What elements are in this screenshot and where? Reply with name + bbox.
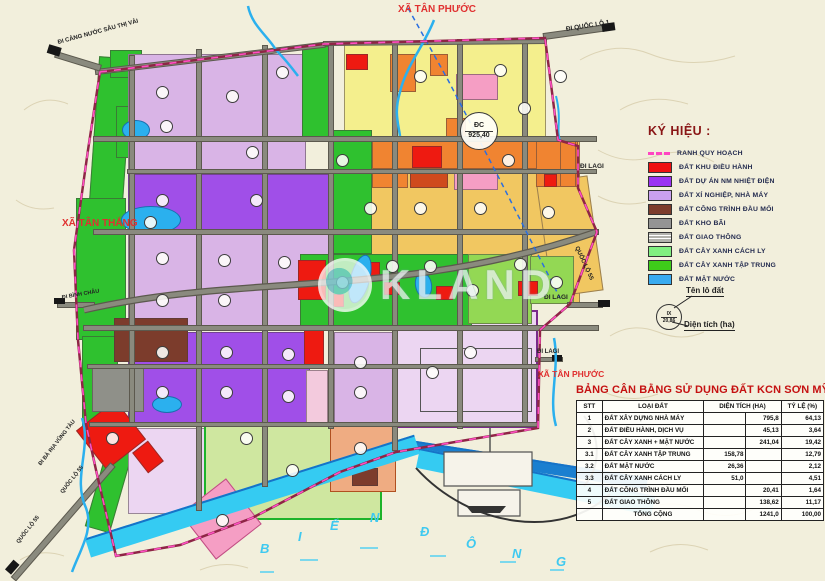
lot-circle (336, 276, 349, 289)
table-cell (704, 425, 746, 437)
table-cell: 241,04 (746, 437, 781, 449)
table-cell (746, 473, 781, 485)
table-cell: 11,17 (781, 497, 823, 509)
legend-dash-swatch (648, 149, 670, 158)
table-cell: 1,64 (781, 485, 823, 497)
sea-name-letter: N (370, 510, 379, 525)
table-cell (746, 449, 781, 461)
map-label: ĐI LAGI (580, 163, 604, 170)
table-header-cell: LOẠI ĐẤT (602, 401, 704, 413)
lot-circle (386, 260, 399, 273)
table-cell: ĐẤT CÂY XANH + MẶT NƯỚC (602, 437, 704, 449)
lot-circle (220, 346, 233, 359)
lot-circle (216, 514, 229, 527)
table-header-cell: STT (577, 401, 603, 413)
table-cell: ĐẤT CÂY XANH TẬP TRUNG (602, 449, 704, 461)
lot-circle (354, 356, 367, 369)
lot-circle (226, 90, 239, 103)
table-cell (704, 413, 746, 425)
legend-item-0: RANH QUY HOẠCH (648, 146, 824, 160)
legend-item-6: ĐẤT GIAO THÔNG (648, 230, 824, 244)
legend-items: RANH QUY HOẠCHĐẤT KHU ĐIỀU HÀNHĐẤT DỰ ÁN… (648, 146, 824, 286)
lot-circle (464, 346, 477, 359)
land-use-table-panel: BẢNG CÂN BẰNG SỬ DỤNG ĐẤT KCN SƠN MỸ 2 S… (576, 384, 824, 521)
table-cell: 3 (577, 437, 603, 449)
land-use-table-title: BẢNG CÂN BẰNG SỬ DỤNG ĐẤT KCN SƠN MỸ 2 (576, 384, 824, 396)
land-use-table-header: STTLOẠI ĐẤTDIỆN TÍCH (HA)TỶ LỆ (%) (577, 401, 824, 413)
table-cell: 4,51 (781, 473, 823, 485)
table-cell: 3.2 (577, 461, 603, 473)
lot-circle (278, 256, 291, 269)
lot-circle (364, 202, 377, 215)
legend-item-label: ĐẤT DỰ ÁN NM NHIỆT ĐIỆN (679, 178, 775, 185)
lot-circle (414, 70, 427, 83)
lot-circle (502, 154, 515, 167)
sea-name-letter: Ô (466, 536, 476, 551)
map-path (466, 506, 506, 513)
legend-item-4: ĐẤT CÔNG TRÌNH ĐẦU MỐI (648, 202, 824, 216)
legend-title: KÝ HIỆU : (648, 124, 824, 138)
table-cell: 5 (577, 497, 603, 509)
table-cell: ĐẤT GIAO THÔNG (602, 497, 704, 509)
lot-circle (426, 366, 439, 379)
legend-item-label: ĐẤT KHU ĐIỀU HÀNH (679, 164, 753, 171)
table-cell (704, 485, 746, 497)
table-cell (746, 461, 781, 473)
lot-circle (414, 202, 427, 215)
legend-item-5: ĐẤT KHO BÃI (648, 216, 824, 230)
table-cell: TỔNG CỘNG (602, 509, 704, 521)
lot-circle (240, 432, 253, 445)
table-cell: 2 (577, 425, 603, 437)
main-area-badge-code: ĐC (474, 122, 484, 130)
legend-item-9: ĐẤT MẶT NƯỚC (648, 272, 824, 286)
map-label: ĐI LAGI (537, 349, 559, 355)
lot-circle (282, 348, 295, 361)
lot-circle (144, 216, 157, 229)
map-label: XÃ TÂN THẮNG (62, 218, 138, 229)
legend-item-label: ĐẤT XÍ NGHIỆP, NHÀ MÁY (679, 192, 768, 199)
table-cell (577, 509, 603, 521)
lot-circle (542, 206, 555, 219)
legend-item-2: ĐẤT DỰ ÁN NM NHIỆT ĐIỆN (648, 174, 824, 188)
table-cell: ĐẤT CÔNG TRÌNH ĐẦU MỐI (602, 485, 704, 497)
lot-circle (156, 294, 169, 307)
legend-item-label: ĐẤT MẶT NƯỚC (679, 276, 735, 283)
legend-swatch (648, 162, 672, 173)
table-cell: 3.3 (577, 473, 603, 485)
table-cell: ĐẤT CÂY XANH CÁCH LY (602, 473, 704, 485)
legend-swatch (648, 204, 672, 215)
legend-item-label: ĐẤT CÂY XANH CÁCH LY (679, 248, 766, 255)
legend-swatch (648, 176, 672, 187)
lot-circle (276, 66, 289, 79)
lot-circle (474, 202, 487, 215)
map-label: ĐI LAGI (544, 294, 568, 301)
lot-circle (156, 386, 169, 399)
table-cell: 3,64 (781, 425, 823, 437)
table-cell: 1241,0 (746, 509, 781, 521)
table-cell: 4 (577, 485, 603, 497)
lot-circle (424, 260, 437, 273)
lot-circle (466, 284, 479, 297)
lot-circle (220, 386, 233, 399)
legend-swatch (648, 190, 672, 201)
legend-item-label: ĐẤT GIAO THÔNG (679, 234, 741, 241)
table-cell: 795,8 (746, 413, 781, 425)
legend-swatch (648, 260, 672, 271)
lot-circle (218, 254, 231, 267)
table-cell (704, 437, 746, 449)
legend-item-label: ĐẤT CÔNG TRÌNH ĐẦU MỐI (679, 206, 774, 213)
lot-circle (156, 346, 169, 359)
legend-swatch (648, 218, 672, 229)
lot-circle (250, 194, 263, 207)
lot-circle (282, 390, 295, 403)
map-label: XÃ TÂN PHƯỚC (398, 4, 476, 15)
lot-circle (106, 432, 119, 445)
lot-circle (160, 120, 173, 133)
legend-swatch (648, 274, 672, 285)
lot-circle (518, 102, 531, 115)
legend-item-3: ĐẤT XÍ NGHIỆP, NHÀ MÁY (648, 188, 824, 202)
lot-circle (550, 276, 563, 289)
table-cell: 158,78 (704, 449, 746, 461)
land-use-table-body: 1ĐẤT XÂY DỰNG NHÀ MÁY795,864,132ĐẤT ĐIỀU… (577, 413, 824, 521)
table-cell: 1 (577, 413, 603, 425)
table-header-cell: TỶ LỆ (%) (781, 401, 823, 413)
table-cell: ĐẤT ĐIỀU HÀNH, DỊCH VỤ (602, 425, 704, 437)
table-cell: 45,13 (746, 425, 781, 437)
table-cell: 100,00 (781, 509, 823, 521)
lot-badge-sample: IX 20,86 (656, 304, 682, 330)
legend-swatch (648, 246, 672, 257)
lot-badge-area: 20,86 (661, 317, 678, 324)
map-label: XÃ TÂN PHƯỚC (538, 369, 604, 379)
table-cell: 64,13 (781, 413, 823, 425)
lot-circle (156, 86, 169, 99)
lot-circle (336, 154, 349, 167)
legend-swatch (648, 232, 672, 243)
legend-item-label: ĐẤT CÂY XANH TẬP TRUNG (679, 262, 776, 269)
sea-name-letter: G (556, 554, 566, 569)
table-cell: 12,79 (781, 449, 823, 461)
table-cell: ĐẤT XÂY DỰNG NHÀ MÁY (602, 413, 704, 425)
lot-circle (494, 64, 507, 77)
lot-circle (246, 146, 259, 159)
sea-name-letter: N (512, 546, 521, 561)
lot-circle (554, 70, 567, 83)
lot-name-label: Tên lô đất (686, 286, 724, 297)
table-cell (704, 509, 746, 521)
main-area-badge-value: 925,40 (465, 131, 492, 140)
table-cell: 2,12 (781, 461, 823, 473)
area-label: Diện tích (ha) (684, 320, 735, 331)
sea-name-letter: B (260, 541, 269, 556)
lot-circle (156, 252, 169, 265)
table-cell: 20,41 (746, 485, 781, 497)
lot-circle (286, 464, 299, 477)
legend-item-label: RANH QUY HOẠCH (677, 150, 743, 157)
lot-circle (218, 294, 231, 307)
lot-circle (354, 386, 367, 399)
map-path (444, 452, 532, 486)
legend-item-label: ĐẤT KHO BÃI (679, 220, 726, 227)
table-cell: 26,36 (704, 461, 746, 473)
lot-circle (514, 258, 527, 271)
planning-map-page: XÃ TÂN PHƯỚCXÃ TÂN THẮNGXÃ TÂN PHƯỚCĐI Q… (0, 0, 825, 581)
sea-name-letter: Ể (330, 518, 339, 533)
symbol-key: Tên lô đất IX 20,86 Diện tích (ha) (648, 286, 818, 348)
map-path (408, 8, 560, 298)
table-cell: 19,42 (781, 437, 823, 449)
sea-name-letter: Đ (420, 524, 429, 539)
table-cell: 51,0 (704, 473, 746, 485)
legend: KÝ HIỆU : RANH QUY HOẠCHĐẤT KHU ĐIỀU HÀN… (648, 124, 824, 286)
main-area-badge: ĐC 925,40 (460, 112, 498, 150)
legend-item-8: ĐẤT CÂY XANH TẬP TRUNG (648, 258, 824, 272)
legend-item-7: ĐẤT CÂY XANH CÁCH LY (648, 244, 824, 258)
legend-item-1: ĐẤT KHU ĐIỀU HÀNH (648, 160, 824, 174)
table-header-cell: DIỆN TÍCH (HA) (704, 401, 782, 413)
lot-circle (156, 194, 169, 207)
map-path (248, 6, 298, 76)
land-use-table: STTLOẠI ĐẤTDIỆN TÍCH (HA)TỶ LỆ (%) 1ĐẤT … (576, 400, 824, 521)
table-cell (704, 497, 746, 509)
table-cell: ĐẤT MẶT NƯỚC (602, 461, 704, 473)
map-path (72, 418, 88, 572)
lot-circle (354, 442, 367, 455)
table-cell: 3.1 (577, 449, 603, 461)
table-cell: 138,62 (746, 497, 781, 509)
sea-name-letter: I (298, 529, 302, 544)
